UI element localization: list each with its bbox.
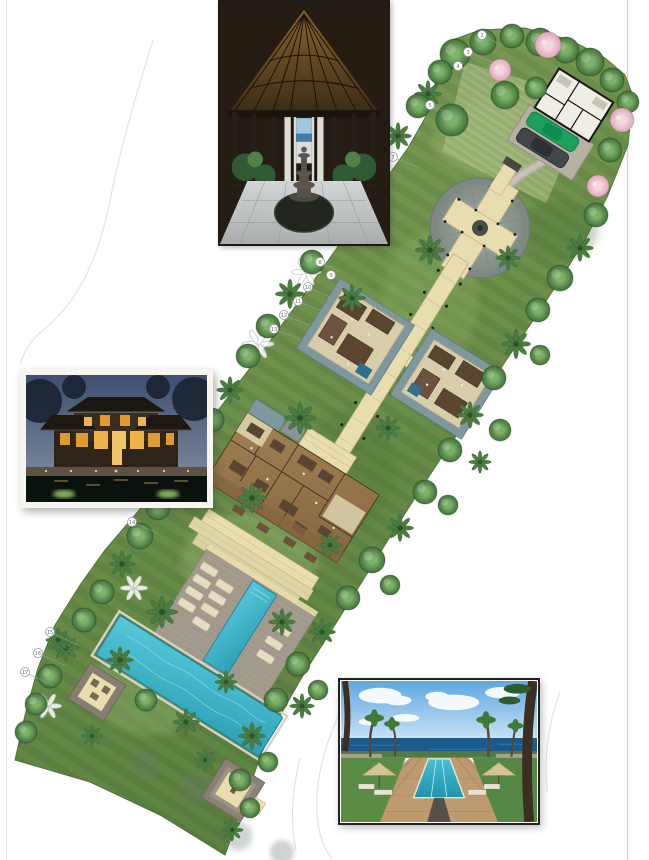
- tree-canopy: [264, 688, 288, 712]
- palm-tree: [338, 284, 365, 311]
- tree-canopy: [547, 265, 573, 291]
- tree-canopy: [489, 419, 511, 441]
- callout-number: 3: [466, 50, 469, 56]
- tree-canopy: [90, 580, 114, 604]
- photo-pool-ocean: [338, 678, 540, 825]
- tree-canopy: [491, 81, 519, 109]
- tree-canopy: [15, 721, 37, 743]
- tree-canopy: [438, 495, 458, 515]
- photo-villa-night: [20, 369, 213, 508]
- tree-canopy: [72, 608, 96, 632]
- callout-number: 16: [35, 651, 42, 657]
- tree-canopy: [308, 680, 328, 700]
- tree-canopy: [428, 60, 452, 84]
- callout-number: 12: [281, 313, 288, 319]
- tree-canopy: [413, 480, 437, 504]
- palm-tree: [290, 694, 315, 719]
- palm-tree: [194, 749, 217, 772]
- tree-canopy: [336, 586, 360, 610]
- palm-tree: [496, 246, 521, 271]
- palm-tree: [415, 235, 444, 264]
- palm-tree: [221, 819, 244, 842]
- palm-tree: [268, 608, 295, 635]
- palm-tree: [456, 401, 483, 428]
- tree-shadow: [270, 840, 294, 860]
- tree-canopy: [229, 769, 251, 791]
- tree-canopy: [526, 298, 550, 322]
- callout-number: 14: [129, 520, 136, 526]
- flowering-tree: [535, 32, 561, 58]
- photo-entrance-pavilion: [218, 0, 390, 246]
- site-plan-page: 23457891011121314151617: [0, 0, 649, 860]
- tree-canopy: [25, 693, 47, 715]
- tree-canopy: [236, 344, 260, 368]
- palm-tree: [566, 234, 593, 261]
- flowering-tree: [587, 175, 609, 197]
- palm-tree: [108, 550, 135, 577]
- palm-tree: [237, 483, 266, 512]
- tree-canopy: [600, 68, 624, 92]
- palm-tree: [318, 533, 343, 558]
- tree-canopy: [286, 652, 310, 676]
- tree-canopy: [359, 547, 385, 573]
- tree-canopy: [525, 77, 547, 99]
- palm-tree: [376, 416, 401, 441]
- tree-shadow: [133, 751, 159, 777]
- palm-tree: [238, 722, 265, 749]
- palm-tree: [501, 329, 530, 358]
- tree-canopy: [127, 523, 153, 549]
- callout-number: 2: [480, 33, 483, 39]
- pool-light: [157, 490, 179, 498]
- callout-number: 10: [305, 285, 312, 291]
- callout-number: 17: [22, 670, 29, 676]
- callout-number: 9: [329, 273, 332, 279]
- tree-canopy: [380, 575, 400, 595]
- tree-canopy: [135, 689, 157, 711]
- palm-tree: [146, 596, 178, 628]
- palm-tree: [216, 376, 243, 403]
- tree-canopy: [576, 48, 604, 76]
- palm-tree: [81, 725, 104, 748]
- tree-canopy: [258, 752, 278, 772]
- callout-number: 7: [391, 155, 394, 161]
- tree-canopy: [482, 366, 506, 390]
- reflecting-pool: [26, 476, 207, 502]
- palm-tree: [308, 618, 335, 645]
- palm-tree: [172, 708, 199, 735]
- flowering-tree: [489, 59, 511, 81]
- tree-canopy: [530, 345, 550, 365]
- tree-canopy: [436, 104, 468, 136]
- palm-tree: [106, 646, 133, 673]
- tree-canopy: [598, 138, 622, 162]
- palm-tree: [469, 451, 492, 474]
- palm-tree: [386, 514, 413, 541]
- callout-number: 13: [271, 327, 278, 333]
- tree-canopy: [240, 798, 260, 818]
- tree-canopy: [584, 203, 608, 227]
- palm-tree: [284, 402, 316, 434]
- palm-tree: [215, 671, 238, 694]
- callout-number: 11: [295, 299, 302, 305]
- callout-number: 8: [318, 260, 321, 266]
- tree-canopy: [500, 24, 524, 48]
- callout-number: 5: [428, 103, 431, 109]
- flowering-tree: [610, 108, 634, 132]
- callout-number: 15: [47, 630, 54, 636]
- tree-shadow: [181, 773, 212, 804]
- tree-canopy: [438, 438, 462, 462]
- pool-light: [53, 490, 75, 498]
